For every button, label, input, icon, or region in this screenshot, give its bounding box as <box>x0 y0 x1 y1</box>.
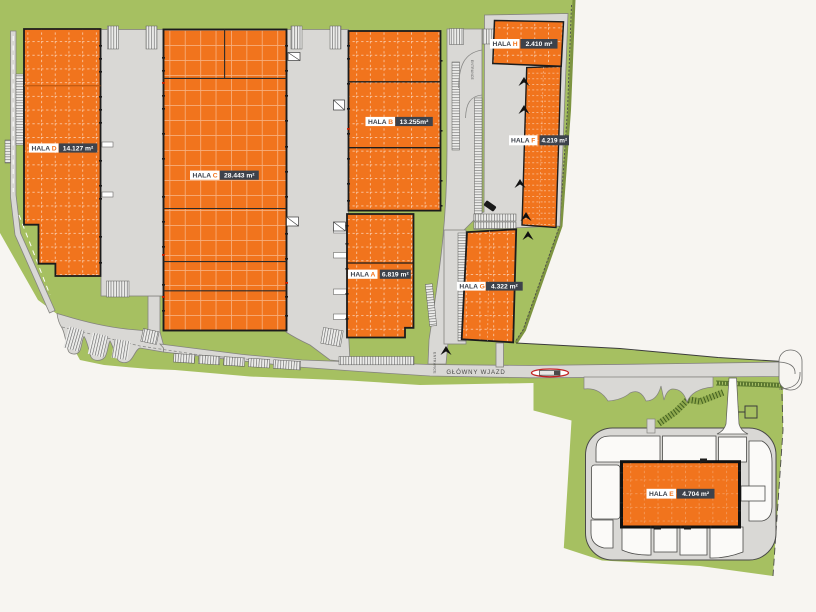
svg-text:HALA F: HALA F <box>511 138 535 145</box>
svg-text:HALA A: HALA A <box>351 272 376 279</box>
svg-text:28.443 m²: 28.443 m² <box>224 173 255 180</box>
svg-text:4.219 m²: 4.219 m² <box>542 138 568 145</box>
svg-text:HALA E: HALA E <box>649 491 674 498</box>
svg-text:14.127 m²: 14.127 m² <box>63 145 94 152</box>
svg-text:13.255m²: 13.255m² <box>400 119 429 126</box>
svg-text:HALA G: HALA G <box>459 284 484 291</box>
svg-text:4.704 m²: 4.704 m² <box>682 491 710 498</box>
svg-text:HALA D: HALA D <box>32 145 57 152</box>
svg-text:HALA H: HALA H <box>493 41 518 48</box>
svg-text:HALA C: HALA C <box>193 173 218 180</box>
svg-text:4.322 m²: 4.322 m² <box>491 284 519 291</box>
svg-text:ENTRANCE: ENTRANCE <box>470 60 474 80</box>
svg-text:2.410 m²: 2.410 m² <box>526 41 554 48</box>
svg-text:GŁÓWNY WJAZD: GŁÓWNY WJAZD <box>446 369 505 376</box>
svg-text:HALA B: HALA B <box>368 119 393 126</box>
svg-text:6.819 m²: 6.819 m² <box>382 272 410 279</box>
svg-text:ENTRANCE: ENTRANCE <box>433 352 437 374</box>
